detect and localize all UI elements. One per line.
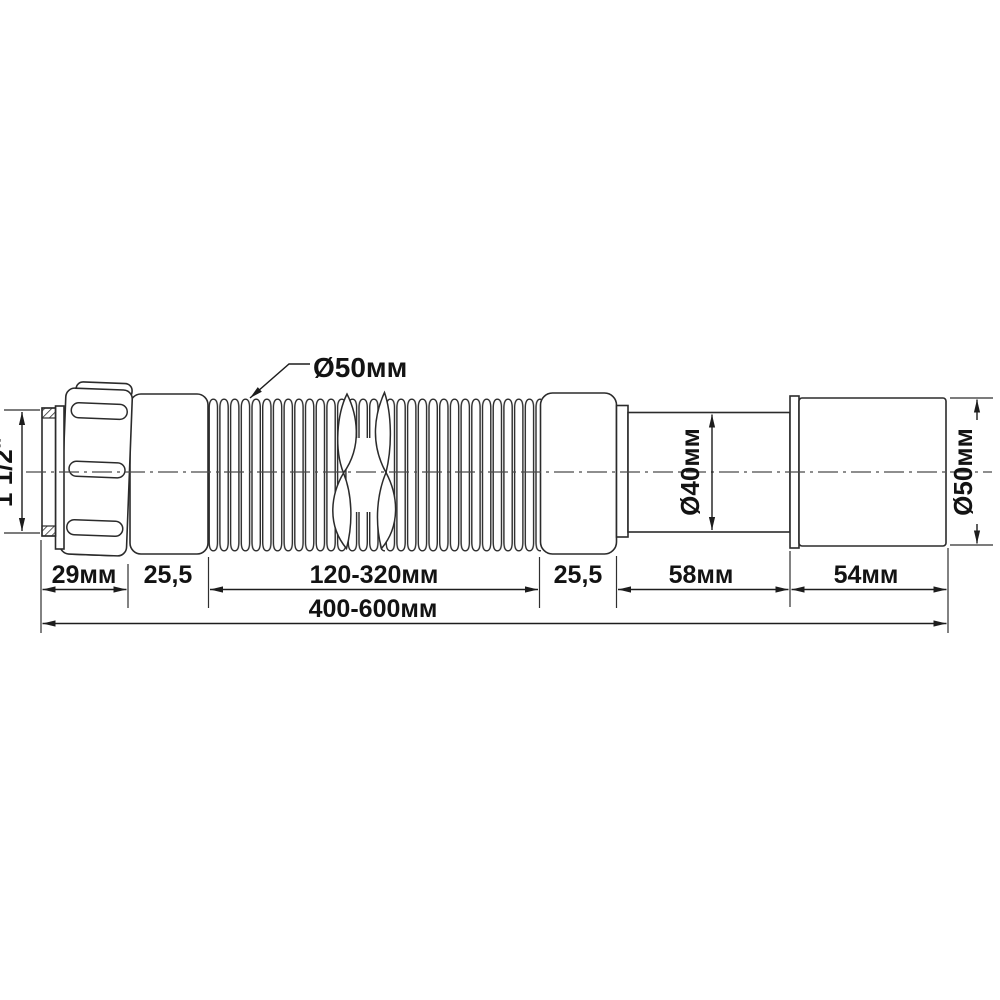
washer <box>42 406 64 549</box>
union-nut <box>60 381 133 556</box>
nut-slot <box>67 519 124 536</box>
dim-end-label: 54мм <box>834 561 899 589</box>
dim-overall-label: 400-600мм <box>309 595 438 623</box>
technical-drawing: 1 1/2" Ø50мм Ø40мм Ø50мм 29мм 25,5 120-3… <box>0 0 1000 1000</box>
pipe-stub <box>56 406 65 549</box>
hose-diameter-label: Ø50мм <box>313 352 407 383</box>
dim-nut-label: 29мм <box>52 561 117 589</box>
outlet-collar <box>541 393 617 554</box>
nut-slot <box>71 403 128 420</box>
washer-hatch-top <box>42 408 56 418</box>
dim-right-collar-label: 25,5 <box>554 561 603 589</box>
dim-outlet-label: 58мм <box>669 561 734 589</box>
collar-step <box>617 406 629 538</box>
hose-ribs-left <box>208 398 347 552</box>
end-diameter-label: Ø50мм <box>948 428 978 516</box>
hose-ribs-right <box>385 398 541 552</box>
dimension-row-overall: 400-600мм <box>43 595 947 624</box>
outlet-diameter-label: Ø40мм <box>675 428 705 516</box>
nut-slot <box>69 461 126 478</box>
hose-diameter-callout: Ø50мм <box>250 352 407 398</box>
dimension-row-1: 29мм 25,5 120-320мм 25,5 58мм 54мм <box>43 561 947 590</box>
washer-hatch-bottom <box>42 526 56 536</box>
leader-line <box>250 364 310 398</box>
thread-size-label: 1 1/2" <box>0 437 18 507</box>
inlet-body <box>130 394 208 554</box>
drawing-canvas: 1 1/2" Ø50мм Ø40мм Ø50мм 29мм 25,5 120-3… <box>0 0 1000 1000</box>
dim-left-collar-label: 25,5 <box>144 561 193 589</box>
dim-hose-length-label: 120-320мм <box>310 561 439 589</box>
